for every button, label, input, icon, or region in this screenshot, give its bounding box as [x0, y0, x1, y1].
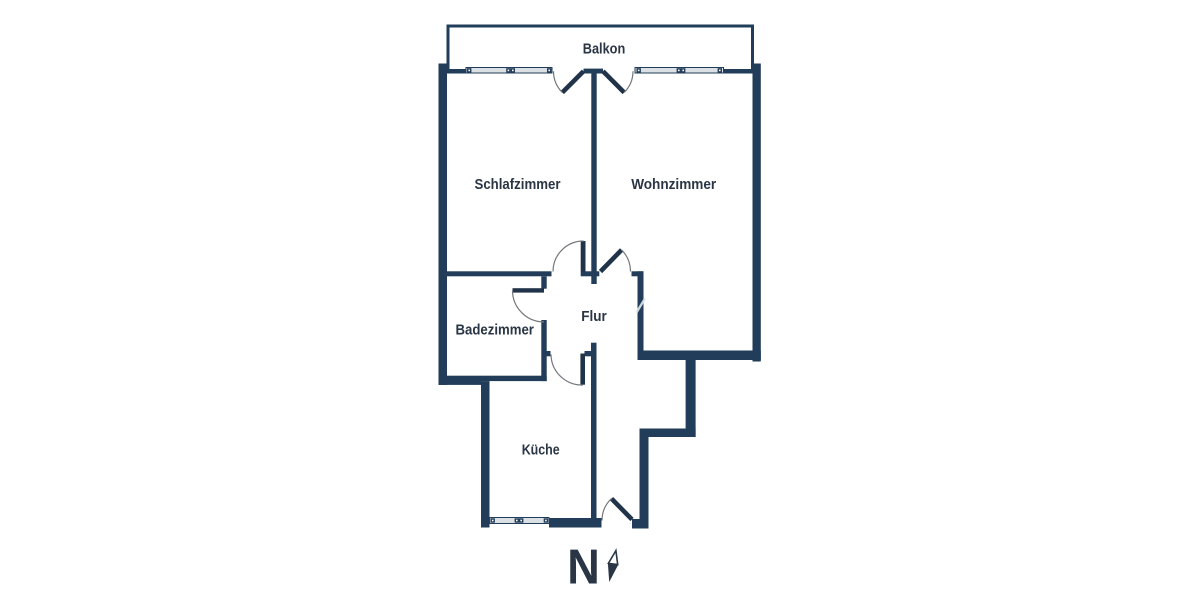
svg-text:Küche: Küche	[522, 442, 560, 459]
svg-text:Balkon: Balkon	[583, 41, 626, 58]
svg-text:Wohnzimmer: Wohnzimmer	[631, 176, 716, 193]
svg-text:Schlafzimmer: Schlafzimmer	[475, 176, 561, 193]
svg-text:N: N	[567, 541, 600, 595]
svg-text:Flur: Flur	[581, 308, 607, 325]
svg-text:Badezimmer: Badezimmer	[455, 322, 534, 339]
